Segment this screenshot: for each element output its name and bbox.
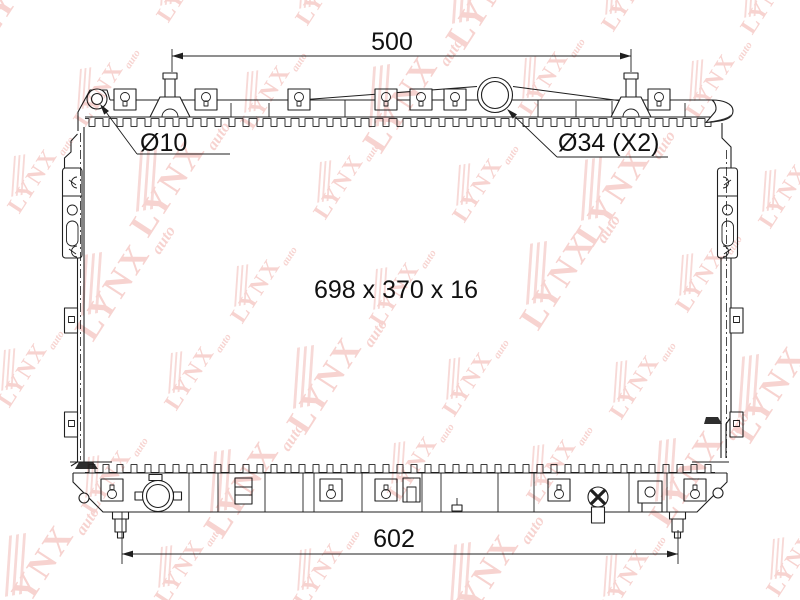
bottom-mount-pin-left bbox=[113, 512, 129, 538]
small-bracket bbox=[452, 498, 462, 511]
dimension-top-width: 500 bbox=[172, 28, 631, 72]
clip bbox=[444, 89, 466, 110]
arrowhead-icon bbox=[172, 53, 183, 60]
core-top-serration bbox=[85, 118, 715, 127]
arrowhead-icon bbox=[122, 551, 133, 558]
bracket-block bbox=[63, 168, 83, 258]
bottom-mount-pin-right bbox=[670, 512, 686, 538]
left-side-bracket bbox=[63, 127, 99, 469]
bracket-block bbox=[718, 168, 738, 258]
filler-neck-label: Ø34 (X2) bbox=[558, 129, 659, 157]
radiator-drawing-page: ///LYNXauto///LYNXauto///LYNXauto///LYNX… bbox=[0, 0, 800, 600]
dim-bottom-width-label: 602 bbox=[373, 525, 415, 553]
end-boss bbox=[79, 493, 89, 503]
filler-neck bbox=[478, 78, 513, 113]
bracket-feature bbox=[235, 478, 252, 504]
clip bbox=[320, 479, 342, 501]
clip bbox=[410, 89, 432, 110]
side-tab bbox=[65, 412, 78, 437]
arrowhead-icon bbox=[620, 53, 631, 60]
top-tank bbox=[78, 73, 733, 131]
core-dimensions-label: 698 x 370 x 16 bbox=[314, 276, 478, 304]
side-tab bbox=[730, 412, 743, 437]
clip bbox=[684, 479, 706, 501]
clip bbox=[101, 479, 123, 501]
top-right-lip bbox=[706, 100, 733, 123]
radiator-technical-drawing: 500 602 Ø10 Ø34 (X2) 698 x 370 x 16 bbox=[0, 0, 800, 600]
clip bbox=[375, 479, 397, 501]
clip bbox=[114, 89, 136, 110]
bracket-feature bbox=[403, 478, 420, 502]
clip bbox=[638, 481, 662, 512]
right-side-bracket bbox=[704, 123, 743, 458]
side-tab bbox=[730, 308, 743, 333]
core-bottom-serration bbox=[85, 464, 715, 473]
end-boss bbox=[713, 488, 723, 498]
clip bbox=[375, 89, 397, 110]
mount-hole-grommet bbox=[87, 89, 107, 109]
mount-hole-label: Ø10 bbox=[140, 129, 187, 157]
clip bbox=[195, 89, 217, 110]
hose-port bbox=[135, 475, 182, 512]
arrowhead-icon bbox=[667, 551, 678, 558]
top-mount-pin-left bbox=[150, 73, 190, 117]
side-tab bbox=[65, 308, 78, 333]
drain-plug bbox=[588, 487, 608, 523]
dim-top-width-label: 500 bbox=[371, 28, 413, 56]
clip bbox=[648, 89, 670, 110]
clip bbox=[288, 89, 310, 110]
top-mount-pin-right bbox=[611, 73, 651, 117]
clip bbox=[548, 479, 570, 501]
